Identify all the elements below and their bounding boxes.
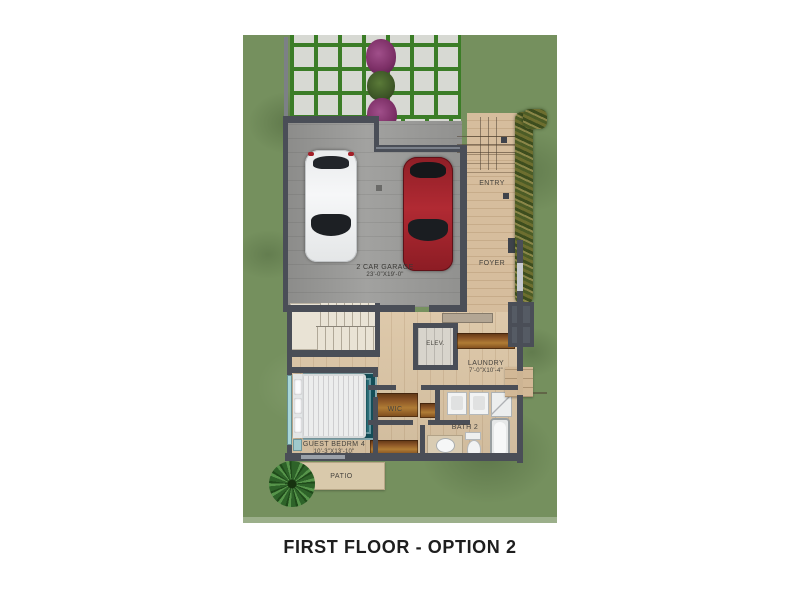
wall-garage-bottom-left bbox=[283, 305, 415, 312]
wall-stairs-right bbox=[375, 303, 380, 352]
sink-basin bbox=[473, 396, 485, 410]
shrub-icon bbox=[367, 71, 395, 101]
wall-garage-bottom-right bbox=[429, 305, 467, 312]
palm-plant bbox=[269, 461, 315, 507]
driveway-side-wall bbox=[284, 37, 288, 117]
entry-rail-line bbox=[488, 117, 489, 170]
pillow bbox=[294, 379, 302, 395]
entry-rail-line bbox=[480, 117, 481, 170]
guest-bed bbox=[293, 374, 366, 438]
car-rear-window bbox=[313, 156, 349, 169]
window-foyer bbox=[517, 263, 523, 291]
vessel-sink bbox=[436, 438, 455, 453]
red-car bbox=[403, 157, 453, 271]
room-label-garage: 2 CAR GARAGE 23'-0"X19'-0" bbox=[340, 263, 430, 280]
wall-garage-top bbox=[283, 116, 379, 123]
stair-flight-lower bbox=[317, 327, 375, 350]
room-label-elevator: ELEV. bbox=[413, 341, 458, 349]
pillow bbox=[294, 417, 302, 433]
tub-basin bbox=[494, 422, 506, 456]
wall-bedroom-right-a bbox=[373, 367, 378, 377]
pillow bbox=[294, 398, 302, 414]
lawn-bottom-edge bbox=[243, 517, 557, 523]
toilet-tank bbox=[465, 432, 481, 440]
wall-mid-a bbox=[368, 420, 413, 425]
laundry-counter bbox=[457, 333, 515, 349]
shrub-icon bbox=[523, 109, 547, 129]
porch-rail-line bbox=[533, 392, 547, 394]
wall-bedroom-top bbox=[292, 367, 378, 373]
car-taillight bbox=[348, 152, 354, 156]
entry-post bbox=[503, 193, 509, 199]
entry-rail-line bbox=[457, 136, 517, 137]
room-label-entry: ENTRY bbox=[467, 179, 517, 188]
flower-bush-icon bbox=[366, 39, 396, 75]
wall-wic-top-a bbox=[368, 385, 396, 390]
wall-garage-entry bbox=[460, 145, 467, 312]
room-label-wic: WIC bbox=[372, 405, 418, 414]
stair-divider bbox=[316, 326, 375, 327]
entry-rail-line bbox=[496, 117, 497, 170]
garage-door bbox=[374, 145, 467, 152]
bath-sink bbox=[447, 392, 467, 415]
car-windshield bbox=[408, 219, 448, 241]
wall-garage-left bbox=[283, 116, 288, 312]
wall-wic-bath bbox=[435, 390, 440, 420]
room-label-foyer: FOYER bbox=[467, 259, 517, 268]
window-bedroom bbox=[287, 375, 292, 445]
page-title: FIRST FLOOR - OPTION 2 bbox=[0, 537, 800, 558]
wall-bath-left bbox=[420, 425, 425, 453]
car-roof bbox=[410, 162, 446, 178]
wall-stairs-bottom bbox=[287, 350, 380, 357]
car-windshield bbox=[311, 214, 351, 236]
room-label-laundry: LAUNDRY 7'-0"X10'-4" bbox=[455, 359, 517, 376]
garage-drain bbox=[376, 185, 382, 191]
car-taillight bbox=[308, 152, 314, 156]
room-label-bath2: BATH 2 bbox=[441, 423, 489, 432]
room-label-guest-bedroom: GUEST BEDRM 4 10'-3"X13'-10" bbox=[295, 440, 373, 457]
room-label-patio: PATIO bbox=[330, 473, 352, 480]
laundry-cabinet bbox=[442, 313, 493, 323]
floor-plan-sheet: ELEV. PATIO bbox=[0, 0, 800, 600]
bed-duvet bbox=[303, 376, 364, 436]
site-rendering: ELEV. PATIO bbox=[243, 35, 557, 523]
entry-post bbox=[501, 137, 507, 143]
sink-basin bbox=[451, 396, 463, 410]
bath-sink bbox=[469, 392, 489, 415]
door-laundry bbox=[517, 371, 523, 395]
garage-door-panel bbox=[376, 147, 465, 149]
white-car bbox=[305, 150, 357, 262]
